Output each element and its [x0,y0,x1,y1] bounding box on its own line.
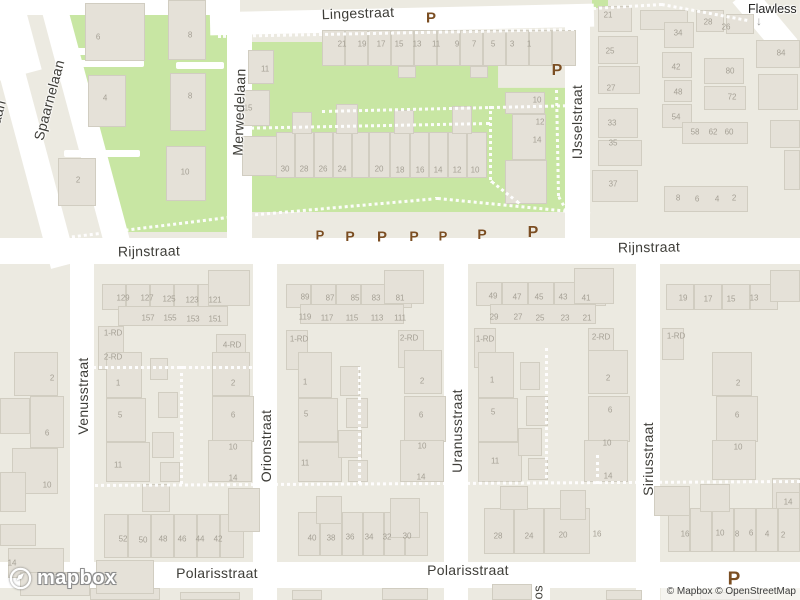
building [106,398,146,442]
dashed-footpath [596,455,599,484]
park-path [62,60,144,67]
building [316,496,342,524]
dashed-footpath [358,367,361,484]
house-number: 2-RD [400,334,418,343]
building [598,108,638,138]
house-number: 127 [140,294,153,303]
building [346,398,368,428]
house-number: 123 [185,296,198,305]
building [142,484,170,512]
house-number: 87 [326,294,335,303]
building [340,366,360,396]
park-path [176,62,224,69]
house-number: 5 [491,40,495,49]
building [292,112,312,134]
building [0,524,36,546]
street-label: Polarisstraat [176,565,258,581]
house-number: 14 [229,474,238,483]
building [382,588,428,600]
house-number: 20 [375,165,384,174]
house-number: 14 [784,498,793,507]
house-number: 8 [188,31,192,40]
house-number: 40 [308,534,317,543]
house-number: 2 [76,176,80,185]
building [758,74,798,110]
house-number: 2-RD [592,333,610,342]
house-number: 21 [583,314,592,323]
map-canvas[interactable]: Flawless H ↓ mapbox © Mapbox © OpenStree… [0,0,800,600]
building [700,484,730,512]
house-number: 1 [490,376,494,385]
house-number: 1 [303,378,307,387]
house-number: 35 [609,139,618,148]
house-number: 119 [299,313,311,322]
house-number: 16 [593,530,602,539]
building [606,590,642,600]
building [106,442,150,482]
building [560,490,586,520]
poi-arrow-icon: ↓ [756,14,762,28]
house-number: 14 [533,136,542,145]
street-label: Orionstraat [258,410,274,483]
dashed-footpath [489,106,492,180]
house-number: 84 [777,49,786,58]
house-number: 3 [510,40,514,49]
house-number: 80 [726,67,735,76]
house-number: 11 [114,461,122,470]
house-number: 50 [139,536,148,545]
parking-icon: P [345,228,354,244]
house-number: 10 [471,166,480,175]
house-number: 30 [281,165,290,174]
house-number: 10 [43,481,52,490]
house-number: 11 [491,457,499,466]
house-number: 24 [525,532,534,541]
house-number: 5 [118,411,122,420]
house-number: 6 [96,33,100,42]
house-number: 43 [559,293,568,302]
house-number: 6 [419,411,423,420]
street-label: Rijnstraat [618,238,680,255]
house-number: 49 [489,292,498,301]
house-number: 36 [346,533,355,542]
house-number: 1-RD [290,335,308,344]
house-number: 54 [672,113,681,122]
house-number: 18 [396,166,405,175]
house-number: 7 [472,40,476,49]
house-number: 6 [231,411,235,420]
house-number: 8 [188,92,192,101]
house-number: 6 [608,406,612,415]
street-label: Merwedelaan [229,68,248,156]
house-number: 72 [728,93,737,102]
house-number: 8 [676,194,680,203]
building [690,508,712,552]
building [500,486,528,510]
building [552,30,576,66]
house-number: 16 [681,530,690,539]
house-number: 10 [603,439,612,448]
building [529,30,552,66]
house-number: 26 [319,165,328,174]
house-number: 42 [214,535,223,544]
house-number: 4 [715,195,719,204]
house-number: 12 [536,118,545,127]
house-number: 10 [418,442,427,451]
house-number: 26 [722,23,731,32]
street-label: Siriusstraat [640,422,656,496]
dashed-footpath [88,366,263,369]
street-label: aan [0,98,9,126]
house-number: 11 [301,459,309,468]
house-number: 58 [691,128,700,137]
mapbox-logo-text: mapbox [37,567,117,590]
building [0,472,26,512]
building [492,584,532,600]
house-number: 14 [417,473,426,482]
street-label: Polarisstraat [427,562,509,578]
building [598,36,638,64]
attribution[interactable]: © Mapbox © OpenStreetMap [661,584,800,600]
building [404,396,446,442]
parking-icon: P [426,10,436,27]
house-number: 10 [533,96,542,105]
building [152,432,174,458]
house-number: 29 [490,313,499,322]
building [180,592,240,600]
house-number: 89 [301,293,310,302]
building [160,462,180,482]
house-number: 6 [45,429,49,438]
building [478,398,518,442]
house-number: 27 [514,313,523,322]
house-number: 155 [163,314,176,323]
house-number: 113 [371,314,383,323]
building [478,442,522,482]
house-number: 117 [321,314,333,323]
building [298,352,332,398]
house-number: 19 [679,294,688,303]
house-number: 157 [141,314,154,323]
building [574,268,614,304]
house-number: 48 [674,88,683,97]
house-number: 2 [736,379,740,388]
house-number: 81 [396,294,405,303]
house-number: 38 [327,534,336,543]
house-number: 6 [695,195,699,204]
house-number: 13 [750,294,759,303]
building [212,352,250,396]
house-number: 12 [453,166,462,175]
house-number: 37 [609,180,618,189]
house-number: 23 [561,314,570,323]
house-number: 8 [735,530,739,539]
house-number: 2-RD [104,353,122,362]
house-number: 1-RD [667,332,685,341]
house-number: 111 [394,314,406,323]
building [30,396,64,448]
house-number: 2 [420,377,424,386]
building [784,150,800,190]
house-number: 62 [709,128,718,137]
street-label: Rijnstraat [118,242,180,259]
dashed-footpath [180,366,183,484]
house-number: 30 [403,532,412,541]
parking-icon: P [552,62,563,80]
house-number: 115 [346,314,358,323]
building [588,396,630,442]
house-number: 19 [358,40,367,49]
house-number: 33 [608,119,617,128]
house-number: 11 [432,40,440,49]
house-number: 10 [734,443,743,452]
building [704,86,746,110]
building [85,3,145,61]
house-number: 41 [582,294,591,303]
parking-icon: P [409,228,418,244]
building [770,120,800,148]
house-number: 15 [727,295,736,304]
house-number: 2 [231,379,235,388]
house-number: 2 [50,374,54,383]
building [398,66,416,78]
building [470,66,488,78]
building [404,350,442,394]
house-number: 47 [513,293,522,302]
street-label: Uranusstraat [449,389,465,473]
house-number: 9 [455,40,459,49]
house-number: 17 [377,40,386,49]
mapbox-logo-icon [8,566,33,591]
house-number: 1-RD [476,335,494,344]
house-number: 2 [781,531,785,540]
house-number: 1 [527,40,531,49]
street-label: Lingestraat [321,4,394,23]
house-number: 21 [338,40,347,49]
house-number: 34 [674,29,683,38]
house-number: 60 [725,128,734,137]
house-number: 4 [103,94,107,103]
house-number: 32 [383,533,392,542]
parking-icon: P [316,228,325,243]
house-number: 52 [119,535,128,544]
house-number: 28 [300,165,309,174]
building [520,362,540,390]
house-number: 11 [261,65,269,74]
house-number: 20 [559,531,568,540]
parking-icon: P [528,224,539,242]
house-number: 27 [607,84,616,93]
house-number: 13 [413,40,422,49]
street-label: bos [531,585,546,600]
building [170,73,206,131]
building [598,66,640,94]
building [292,590,322,600]
building [712,352,752,396]
house-number: 34 [365,533,374,542]
house-number: 46 [178,535,187,544]
house-number: 10 [229,443,238,452]
building [158,392,178,418]
building [352,132,369,178]
house-number: 6 [749,529,753,538]
street-label: Venusstraat [75,357,91,434]
house-number: 28 [494,532,503,541]
dashed-footpath [545,348,548,484]
house-number: 5 [491,408,495,417]
house-number: 121 [208,296,221,305]
house-number: 85 [351,294,360,303]
house-number: 15 [395,40,404,49]
house-number: 25 [606,47,615,56]
house-number: 24 [338,165,347,174]
house-number: 1-RD [104,329,122,338]
parking-icon: P [439,229,448,244]
parking-icon: P [377,229,387,246]
house-number: 10 [716,529,725,538]
house-number: 153 [186,315,199,324]
house-number: 25 [536,314,545,323]
building [452,106,472,134]
house-number: 44 [196,535,205,544]
house-number: 2 [606,374,610,383]
building [770,270,800,302]
building [518,428,542,456]
house-number: 129 [116,294,129,303]
house-number: 42 [672,63,681,72]
building [228,488,260,532]
building [394,110,414,134]
house-number: 10 [181,168,190,177]
parking-icon: P [477,226,486,242]
park-path [64,150,140,157]
house-number: 4 [765,530,769,539]
house-number: 6 [735,411,739,420]
mapbox-logo[interactable]: mapbox [8,566,117,591]
house-number: 21 [604,11,613,20]
building [704,58,744,84]
house-number: 83 [372,294,381,303]
house-number: 1 [116,379,120,388]
building [478,352,514,398]
house-number: 125 [162,295,175,304]
building [654,486,690,516]
house-number: 4-RD [223,341,241,350]
building [298,398,338,442]
house-number: 48 [159,535,168,544]
building [598,140,642,166]
building [150,358,168,380]
house-number: 2 [732,194,736,203]
building [0,398,30,434]
house-number: 28 [704,18,713,27]
house-number: 14 [604,472,613,481]
street-label: IJsselstraat [569,85,585,159]
house-number: 151 [208,315,221,324]
house-number: 5 [304,410,308,419]
house-number: 45 [535,293,544,302]
building [588,350,628,394]
house-number: 17 [704,295,713,304]
house-number: 14 [434,166,443,175]
house-number: 16 [416,166,425,175]
